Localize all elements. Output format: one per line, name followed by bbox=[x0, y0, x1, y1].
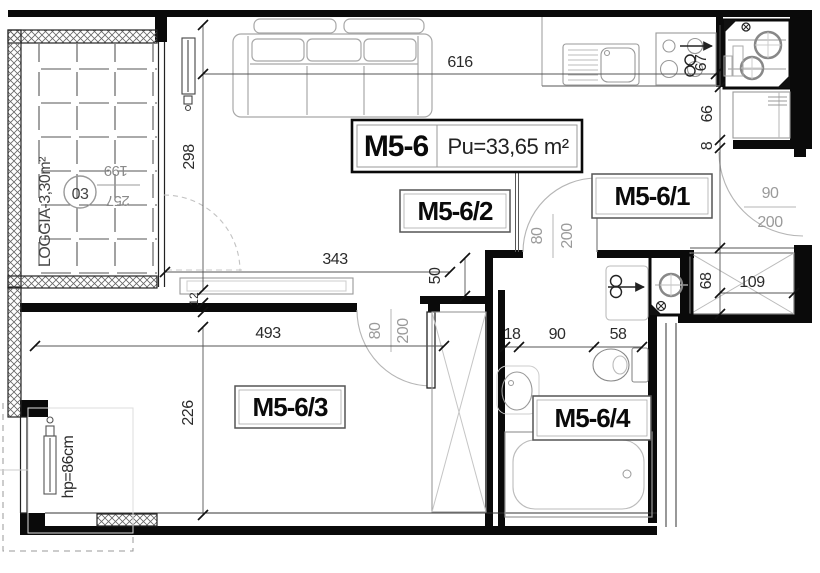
room-label-2: M5-6/2 bbox=[400, 190, 510, 232]
wall-right-upper bbox=[790, 17, 812, 140]
title-unit: M5-6 bbox=[364, 130, 429, 163]
boundary-lines-bottom-right bbox=[666, 323, 676, 527]
bath-vent-symbol bbox=[608, 276, 644, 298]
dim-right1: 66 bbox=[699, 105, 716, 122]
wall-top bbox=[8, 10, 812, 17]
bedroom-door-arc bbox=[357, 310, 431, 386]
dim-bedroom-h: 226 bbox=[180, 400, 197, 426]
svg-text:200: 200 bbox=[559, 223, 576, 249]
washing-machine bbox=[606, 266, 648, 320]
wall-bottom-left-corner bbox=[20, 513, 45, 527]
loggia-number: 03 bbox=[72, 186, 89, 203]
sofa bbox=[233, 19, 432, 117]
svg-text:80: 80 bbox=[367, 322, 384, 339]
svg-text:80: 80 bbox=[529, 227, 546, 244]
dim-entry-h: 68 bbox=[698, 272, 715, 289]
kitchen-counter bbox=[542, 17, 722, 86]
entry-door-hinge bbox=[794, 149, 806, 157]
loggia: LOGGIA-3,30m² 03 199 257 bbox=[36, 42, 242, 287]
room-label-1: M5-6/1 bbox=[592, 174, 712, 218]
wardrobe bbox=[432, 312, 486, 512]
kitchen-vent-shaft bbox=[724, 20, 790, 88]
svg-text:M5-6/1: M5-6/1 bbox=[615, 181, 690, 211]
dim-bedroom-w: 493 bbox=[255, 325, 281, 342]
loggia-window bbox=[159, 42, 165, 287]
svg-text:M5-6/3: M5-6/3 bbox=[253, 392, 328, 422]
toilet bbox=[593, 348, 648, 382]
loggia-label: LOGGIA-3,30m² bbox=[37, 156, 54, 267]
dim-living-height: 298 bbox=[181, 144, 198, 170]
room-label-4: M5-6/4 bbox=[533, 396, 651, 440]
kitchen-sink bbox=[563, 44, 639, 85]
dim-bath-door: 90 bbox=[549, 326, 566, 343]
wall-jog bbox=[420, 296, 493, 304]
entry-door-size: 90 200 bbox=[744, 185, 796, 231]
dim-bath-left: 18 bbox=[504, 326, 521, 343]
living-radiator bbox=[182, 38, 195, 111]
svg-text:90: 90 bbox=[762, 185, 779, 202]
loggia-dim-width: 199 bbox=[104, 162, 128, 179]
wall-bedroom-door-block bbox=[428, 303, 440, 312]
loggia-door-arc bbox=[164, 195, 240, 271]
dim-nook: 50 bbox=[427, 267, 444, 284]
dim-parapet: hp=86cm bbox=[60, 435, 77, 498]
wall-kitchen-shaft bbox=[716, 17, 723, 87]
svg-text:M5-6/4: M5-6/4 bbox=[555, 403, 631, 433]
dimension-texts: 616 298 343 50 12 493 226 18 90 58 66 8 … bbox=[180, 54, 765, 426]
wall-entry-bottom bbox=[678, 314, 812, 323]
dim-wall-thk: 12 bbox=[187, 292, 201, 306]
loggia-tiles bbox=[36, 44, 157, 276]
loggia-dim-height: 257 bbox=[106, 192, 130, 209]
title-leader-line bbox=[516, 170, 519, 252]
dim-living-width: 343 bbox=[322, 251, 348, 268]
loggia-wall-top bbox=[8, 30, 157, 43]
title-box: M5-6 Pu=33,65 m² bbox=[352, 120, 582, 172]
entry-door-leaf bbox=[733, 140, 812, 149]
room-label-3: M5-6/3 bbox=[235, 386, 345, 428]
title-area: Pu=33,65 m² bbox=[447, 134, 568, 159]
dim-top: 616 bbox=[447, 54, 473, 71]
dim-entry-w: 109 bbox=[739, 274, 765, 291]
exterior-wall-left bbox=[8, 287, 21, 417]
wall-bottom bbox=[20, 526, 657, 535]
bath-door-size: 80 200 bbox=[529, 214, 576, 258]
dim-bath-right: 58 bbox=[610, 326, 627, 343]
bedroom-window bbox=[20, 417, 27, 513]
fridge bbox=[733, 92, 790, 138]
loggia-wall-left bbox=[8, 30, 21, 288]
dim-right2: 8 bbox=[699, 141, 716, 150]
bedroom-radiator bbox=[44, 417, 56, 494]
exterior-wall-bottom bbox=[97, 514, 157, 526]
floor-plan-drawing: LOGGIA-3,30m² 03 199 257 hp=86cm bbox=[0, 0, 820, 573]
bathtub bbox=[505, 432, 652, 517]
wall-entry-right bbox=[794, 245, 812, 323]
svg-text:200: 200 bbox=[757, 214, 783, 231]
svg-text:M5-6/2: M5-6/2 bbox=[418, 196, 493, 226]
bedroom-door-leaf bbox=[427, 312, 435, 388]
floor-plan-page: LOGGIA-3,30m² 03 199 257 hp=86cm bbox=[0, 0, 820, 573]
loggia-wall-bottom bbox=[8, 276, 157, 288]
dim-stove: 67 bbox=[693, 54, 710, 71]
svg-text:200: 200 bbox=[395, 318, 412, 344]
